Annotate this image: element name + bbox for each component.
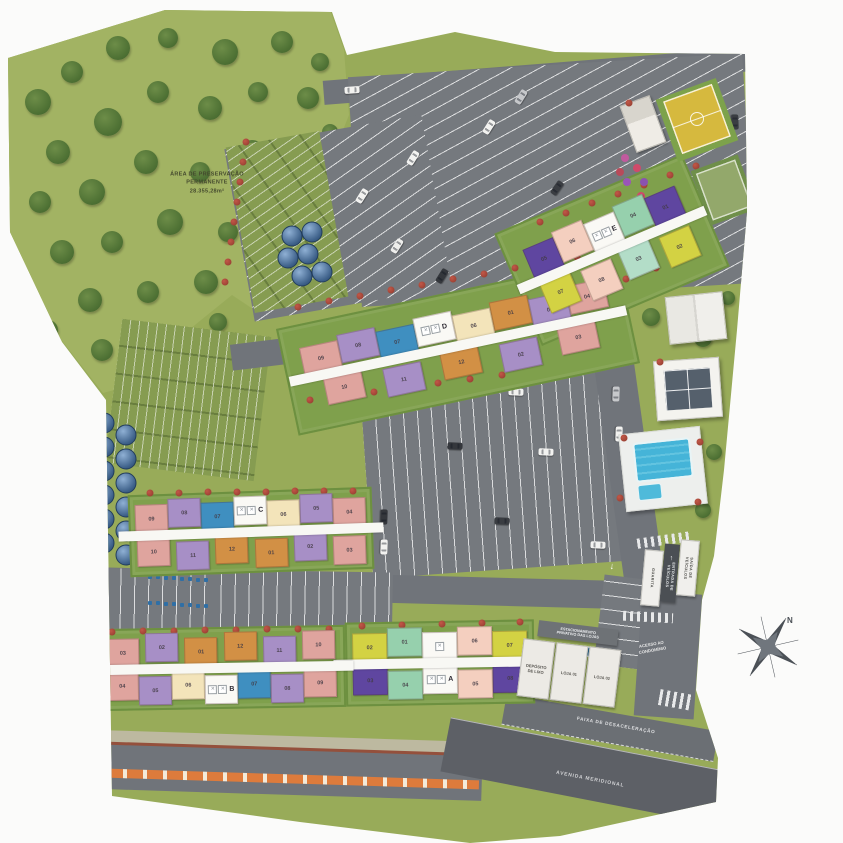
- stairwell-icon: ✕: [421, 325, 432, 336]
- tree: [29, 191, 51, 213]
- unit-number: 12: [237, 643, 243, 649]
- shrub: [537, 219, 544, 226]
- flower-bed: [623, 178, 631, 186]
- shrub: [243, 139, 250, 146]
- car-windshield: [541, 449, 550, 454]
- water-tank: [116, 425, 137, 446]
- accessible-spot-marker: [196, 578, 200, 582]
- tree: [38, 320, 58, 340]
- unit-number: 07: [394, 338, 401, 345]
- swimming-pool: [632, 437, 694, 483]
- shrub: [615, 191, 622, 198]
- building-a-unit-03: 03: [353, 666, 389, 696]
- unit-number: 09: [317, 355, 324, 362]
- tree: [61, 61, 83, 83]
- accessible-spot-marker: [148, 601, 152, 605]
- car-windshield: [381, 512, 386, 521]
- building-c-letter: C: [258, 507, 263, 514]
- shrub: [234, 489, 241, 496]
- tree: [271, 31, 293, 53]
- tree: [297, 87, 319, 109]
- building-c-unit-10: 10: [137, 537, 171, 567]
- tree: [101, 231, 123, 253]
- court-center-circle: [690, 112, 704, 126]
- unit-number: 05: [540, 255, 548, 263]
- unit-number: 08: [181, 510, 187, 516]
- car: [538, 448, 553, 456]
- building-a-letter: A: [448, 676, 453, 683]
- water-tank: [94, 485, 115, 506]
- car: [590, 541, 605, 549]
- water-tank: [116, 449, 137, 470]
- pool-hedge: [697, 439, 704, 446]
- accessible-spot-marker: [164, 602, 168, 606]
- shrub: [589, 200, 596, 207]
- building-c-unit-02: 02: [293, 531, 327, 561]
- car-windshield: [347, 87, 356, 93]
- car: [344, 86, 359, 94]
- building-a-core: ✕✕A: [423, 665, 459, 695]
- shrub: [450, 276, 457, 283]
- water-tank: [312, 262, 333, 283]
- tree: [78, 288, 102, 312]
- unit-number: 08: [598, 276, 606, 284]
- unit-number: 01: [268, 550, 274, 556]
- tree: [137, 281, 159, 303]
- accessible-spot-marker: [188, 577, 192, 581]
- water-tank: [94, 533, 115, 554]
- accessible-spot-marker: [172, 602, 176, 606]
- unit-number: 10: [315, 642, 321, 648]
- unit-number: 09: [317, 680, 323, 686]
- shrub: [295, 626, 302, 633]
- building-b-unit-10: 10: [302, 630, 336, 660]
- shrub: [264, 626, 271, 633]
- building-b-letter: B: [229, 686, 234, 693]
- building-b-unit-07: 07: [238, 669, 272, 699]
- pool-hedge: [621, 435, 628, 442]
- flower-bed: [621, 154, 629, 162]
- water-tank: [116, 473, 137, 494]
- unit-number: 01: [198, 649, 204, 655]
- tree: [50, 240, 74, 264]
- water-tank: [94, 461, 115, 482]
- unit-number: 04: [346, 509, 352, 515]
- unit-number: 07: [214, 514, 220, 520]
- shrub: [626, 100, 633, 107]
- tree: [91, 339, 113, 361]
- vehicle-exit-label: SAÍDA DE VEÍCULOS: [682, 556, 693, 579]
- building-d-letter: D: [442, 323, 448, 331]
- unit-number: 11: [190, 552, 196, 558]
- unit-number: 05: [313, 505, 319, 511]
- shrub: [667, 172, 674, 179]
- building-c-unit-11: 11: [176, 540, 210, 570]
- shrub: [234, 199, 241, 206]
- unit-number: 06: [470, 322, 477, 329]
- unit-number: 10: [341, 383, 348, 390]
- shrub: [205, 489, 212, 496]
- building-e-letter: E: [611, 225, 618, 233]
- tree: [311, 53, 329, 71]
- water-tank: [94, 437, 115, 458]
- shrub: [657, 359, 664, 366]
- accessible-spot-marker: [204, 578, 208, 582]
- building-c-unit-03: 03: [333, 535, 367, 565]
- water-tank: [278, 248, 299, 269]
- tree: [157, 209, 183, 235]
- flower-bed: [616, 168, 624, 176]
- unit-number: 07: [251, 681, 257, 687]
- shrub: [517, 619, 524, 626]
- tree: [209, 313, 227, 331]
- unit-number: 08: [355, 342, 362, 349]
- unit-number: 02: [517, 351, 524, 358]
- building-a-unit-06: 06: [457, 626, 493, 656]
- building-c: 090807✕✕C060504101112010203: [129, 496, 372, 568]
- shrub: [350, 488, 357, 495]
- shrub: [388, 287, 395, 294]
- water-tank: [94, 509, 115, 530]
- shrub: [225, 259, 232, 266]
- compass-rose-icon: N: [733, 612, 803, 682]
- shrub: [326, 298, 333, 305]
- unit-number: 03: [120, 650, 126, 656]
- shrub: [176, 490, 183, 497]
- unit-number: 11: [400, 376, 407, 383]
- building-b-unit-06: 06: [172, 670, 206, 700]
- accessible-spot-marker: [180, 603, 184, 607]
- tree: [134, 150, 158, 174]
- shrub: [359, 623, 366, 630]
- shrub: [231, 219, 238, 226]
- unit-number: 02: [676, 243, 684, 251]
- unit-number: 06: [472, 638, 478, 644]
- unit-number: 03: [575, 334, 582, 341]
- tree: [94, 108, 122, 136]
- building-b-core: ✕✕B: [205, 675, 239, 705]
- shrub: [563, 210, 570, 217]
- shrub: [222, 279, 229, 286]
- shrub: [295, 304, 302, 311]
- masterplan-canvas: { "palette": { "pink": "#dfa49e", "laven…: [0, 0, 843, 843]
- clubhouse-building: [665, 291, 728, 345]
- building-b-unit-08: 08: [271, 674, 305, 704]
- unit-number: 04: [629, 212, 637, 220]
- unit-number: 03: [346, 547, 352, 553]
- building-a-unit-05: 05: [458, 669, 494, 699]
- car: [612, 386, 620, 401]
- car-windshield: [450, 443, 459, 448]
- stairwell-icon: ✕: [437, 675, 446, 684]
- unit-number: 05: [472, 681, 478, 687]
- water-tank: [292, 266, 313, 287]
- building-b-unit-02: 02: [145, 633, 179, 663]
- building-c-unit-05: 05: [299, 493, 333, 523]
- unit-number: 03: [367, 678, 373, 684]
- unit-number: 06: [185, 682, 191, 688]
- vehicle-entrance-label: ENTRADA DE VEÍCULOS: [664, 562, 676, 591]
- tree: [25, 89, 51, 115]
- stairwell-icon: ✕: [427, 675, 436, 684]
- unit-number: 01: [402, 639, 408, 645]
- shrub: [419, 282, 426, 289]
- unit-number: 04: [119, 683, 125, 689]
- shrub: [202, 627, 209, 634]
- preserve-area-label: ÁREA DE PRESERVAÇÃO PERMANENTE 28.355,28…: [170, 171, 244, 196]
- building-b-unit-05: 05: [139, 676, 173, 706]
- shrub: [240, 159, 247, 166]
- water-tank: [298, 244, 319, 265]
- stairwell-icon: ✕: [431, 323, 442, 334]
- site-area: 0201✕06070304✕✕A0508030201121110040506✕✕…: [0, 0, 843, 843]
- down-arrow-icon: ↓: [607, 561, 618, 572]
- tree: [147, 81, 169, 103]
- stairwell-icon: ✕: [435, 642, 444, 651]
- unit-number: 12: [229, 546, 235, 552]
- unit-number: 02: [159, 644, 165, 650]
- stairwell-icon: ✕: [218, 685, 227, 694]
- building-a: 0201✕06070304✕✕A0508: [345, 629, 535, 696]
- tree: [158, 28, 178, 48]
- accessible-spot-marker: [188, 603, 192, 607]
- unit-number: 01: [507, 309, 514, 316]
- accessible-spot-marker: [204, 604, 208, 608]
- compass-north-label: N: [787, 616, 793, 625]
- tree: [248, 82, 268, 102]
- building-c-core: ✕✕C: [233, 495, 267, 525]
- shrub: [481, 271, 488, 278]
- tree: [194, 270, 218, 294]
- car-windshield: [613, 389, 618, 398]
- unit-number: 07: [557, 288, 565, 296]
- unit-number: 05: [152, 688, 158, 694]
- building-b-unit-04: 04: [106, 671, 140, 701]
- unit-number: 08: [284, 685, 290, 691]
- unit-number: 11: [276, 647, 282, 653]
- shrub: [147, 490, 154, 497]
- unit-number: 10: [151, 549, 157, 555]
- water-tank: [94, 413, 115, 434]
- tree: [706, 444, 722, 460]
- tree: [106, 36, 130, 60]
- tree: [46, 140, 70, 164]
- shrub: [292, 488, 299, 495]
- car: [494, 517, 509, 525]
- accessible-spot-marker: [164, 576, 168, 580]
- accessible-spot-marker: [156, 601, 160, 605]
- car-windshield: [497, 518, 506, 523]
- solar-panel-grid: [664, 367, 713, 410]
- kids-pool: [637, 483, 663, 501]
- unit-number: 09: [148, 516, 154, 522]
- tree: [642, 308, 660, 326]
- shrub: [357, 293, 364, 300]
- stairwell-icon: ✕: [208, 685, 217, 694]
- car-windshield: [381, 542, 386, 551]
- flower-bed: [640, 178, 648, 186]
- water-tank: [302, 222, 323, 243]
- shrub: [512, 265, 519, 272]
- accessible-spot-marker: [180, 577, 184, 581]
- unit-number: 02: [307, 543, 313, 549]
- unit-number: 03: [635, 255, 643, 263]
- tree: [212, 39, 238, 65]
- accessible-spot-marker: [196, 604, 200, 608]
- shrub: [228, 239, 235, 246]
- car-windshield: [593, 542, 602, 547]
- building-a-row-bottom: 0304✕✕A0508: [346, 664, 535, 696]
- building-b: 030201121110040506✕✕B070809: [100, 634, 342, 702]
- building-c-unit-12: 12: [215, 534, 249, 564]
- shrub: [109, 629, 116, 636]
- unit-number: 12: [458, 359, 465, 366]
- car: [380, 539, 388, 554]
- shrub: [439, 621, 446, 628]
- unit-number: 06: [568, 237, 576, 245]
- tree: [79, 179, 105, 205]
- accessible-spot-marker: [172, 576, 176, 580]
- car-windshield: [511, 389, 520, 394]
- building-c-unit-08: 08: [167, 498, 201, 528]
- unit-number: 08: [507, 675, 513, 681]
- water-tank: [282, 226, 303, 247]
- car: [447, 442, 462, 450]
- flower-bed: [633, 164, 641, 172]
- building-a-unit-04: 04: [388, 670, 424, 700]
- building-a-unit-01: 01: [387, 627, 423, 657]
- unit-number: 02: [367, 645, 373, 651]
- unit-number: 07: [507, 642, 513, 648]
- stairwell-icon: ✕: [237, 506, 246, 515]
- unit-number: 04: [402, 682, 408, 688]
- building-c-unit-01: 01: [254, 538, 288, 568]
- unit-number: 01: [662, 203, 670, 211]
- stairwell-icon: ✕: [247, 506, 256, 515]
- unit-number: 06: [280, 511, 286, 517]
- building-b-unit-09: 09: [304, 668, 338, 698]
- tree: [198, 96, 222, 120]
- pool-hedge: [695, 499, 702, 506]
- guardhouse-label: GUARITA: [649, 568, 655, 588]
- pool-hedge: [617, 495, 624, 502]
- building-b-unit-12: 12: [223, 631, 257, 661]
